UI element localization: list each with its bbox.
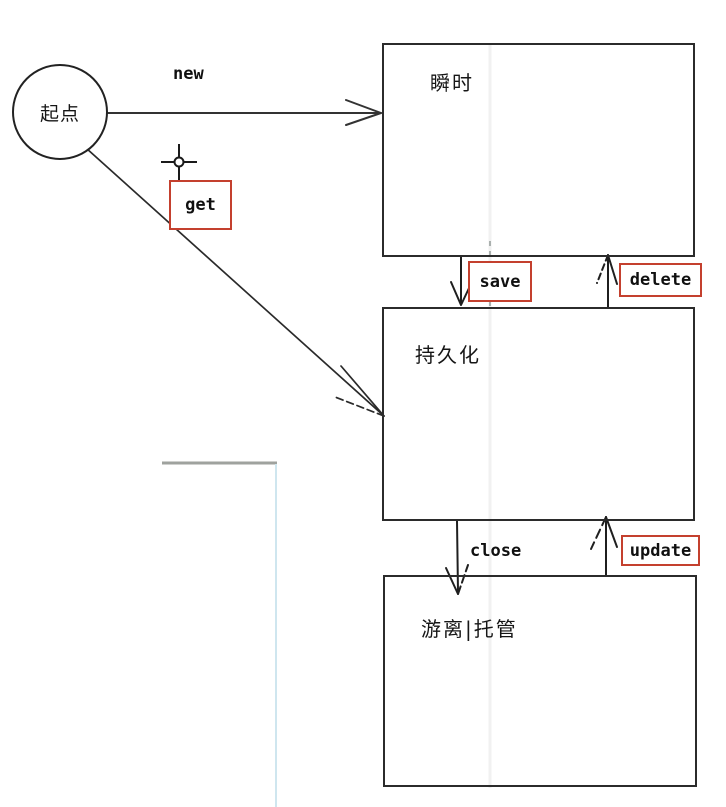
state-box-persistent[interactable]: 持久化 (382, 307, 695, 521)
transition-label-update-text: update (630, 541, 691, 561)
transition-label-update[interactable]: update (621, 535, 700, 566)
transition-label-delete-text: delete (630, 270, 691, 290)
transition-label-close: close (470, 541, 521, 561)
state-box-transient[interactable]: 瞬时 (382, 43, 695, 257)
diagram-canvas[interactable]: 起点 瞬时 持久化 游离|托管 new get save delete clos… (0, 0, 726, 807)
edge-get (86, 148, 384, 416)
transition-label-save[interactable]: save (468, 261, 532, 302)
transition-label-new: new (173, 64, 204, 84)
transition-label-get-text: get (185, 195, 216, 215)
start-node-label: 起点 (40, 99, 80, 126)
state-label-transient: 瞬时 (430, 67, 474, 96)
start-node[interactable]: 起点 (12, 64, 108, 160)
edge-update-arrowhead (591, 517, 606, 549)
transition-label-delete[interactable]: delete (619, 263, 702, 297)
edge-delete (597, 255, 617, 307)
crosshair-cursor-icon (161, 144, 197, 181)
state-label-detached: 游离|托管 (421, 613, 518, 642)
state-box-detached[interactable]: 游离|托管 (383, 575, 697, 787)
transition-label-save-text: save (480, 272, 521, 292)
transition-label-get[interactable]: get (169, 180, 232, 230)
edge-update (591, 517, 617, 575)
edge-new (108, 100, 381, 125)
state-label-persistent: 持久化 (415, 339, 481, 368)
edge-delete-arrowhead (597, 255, 608, 283)
